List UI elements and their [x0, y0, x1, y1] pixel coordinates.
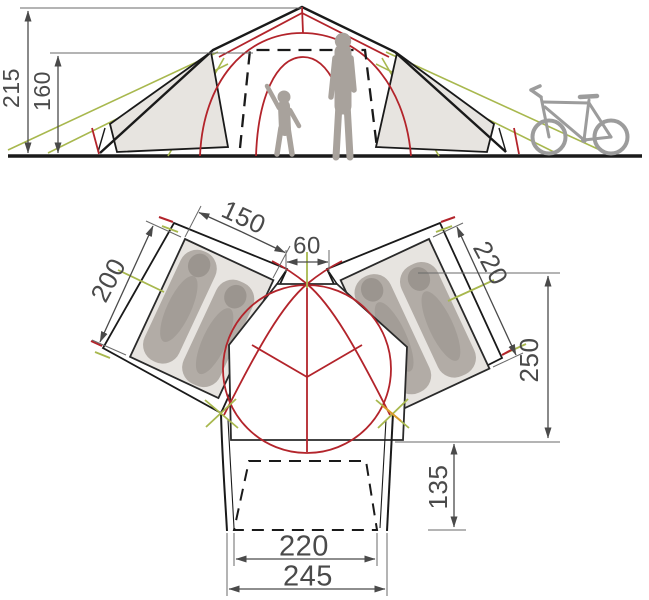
child-figure	[267, 86, 299, 154]
dim-label-center-gap: 60	[293, 232, 321, 259]
adult-leg	[336, 104, 339, 157]
porch-left-wall	[221, 413, 227, 531]
dim-label-porch-outer-width: 245	[283, 561, 333, 593]
adult-arm	[331, 58, 335, 97]
dim-label-standing-height: 160	[29, 71, 55, 111]
dim-label-right-cabin-length: 220	[467, 236, 515, 290]
bicycle-chainstay	[584, 137, 611, 140]
dim-label-left-cabin-width: 150	[217, 194, 270, 240]
dim-label-porch-depth: 135	[423, 465, 453, 510]
side-elevation-view: 215 160	[0, 7, 642, 157]
bicycle-handlebar	[531, 86, 541, 97]
child-arm	[290, 110, 299, 126]
dim-label-peak-height: 215	[0, 68, 24, 108]
child-raised-arm	[267, 86, 279, 108]
door-opening-dashed	[240, 50, 377, 148]
tent-dimension-diagram: 215 160	[0, 0, 649, 600]
corner-tick-red	[159, 217, 173, 222]
left-red-guy	[92, 128, 99, 154]
dim-label-porch-inner-width: 220	[279, 531, 329, 563]
dim-label-left-cabin-length: 200	[84, 253, 132, 307]
apex-pole	[302, 7, 303, 33]
corner-tick	[95, 352, 110, 358]
adult-leg	[347, 104, 350, 157]
porch-groundsheet-dashed	[234, 461, 377, 530]
side-guylines-green	[8, 52, 600, 156]
right-red-guy	[514, 128, 519, 154]
corner-tick-red	[441, 217, 455, 222]
child-leg	[288, 128, 292, 154]
bicycle-top-tube	[543, 102, 589, 103]
child-leg	[277, 128, 281, 154]
child-torso	[284, 106, 285, 130]
side-wings	[98, 52, 506, 152]
bicycle-saddle	[580, 96, 597, 97]
floor-plan-view: 150 60 220 200 250 135 220 245	[84, 194, 560, 596]
adult-figure	[331, 33, 354, 157]
corner-tick-red	[502, 349, 513, 355]
right-wing-side	[376, 53, 494, 152]
bicycle-figure	[531, 86, 628, 154]
bicycle-crank	[581, 137, 587, 143]
adult-arm	[351, 58, 354, 90]
dim-label-living-area-depth: 250	[514, 338, 544, 383]
diagram-canvas: 215 160	[0, 0, 649, 600]
bicycle-seat-tube	[584, 100, 589, 140]
